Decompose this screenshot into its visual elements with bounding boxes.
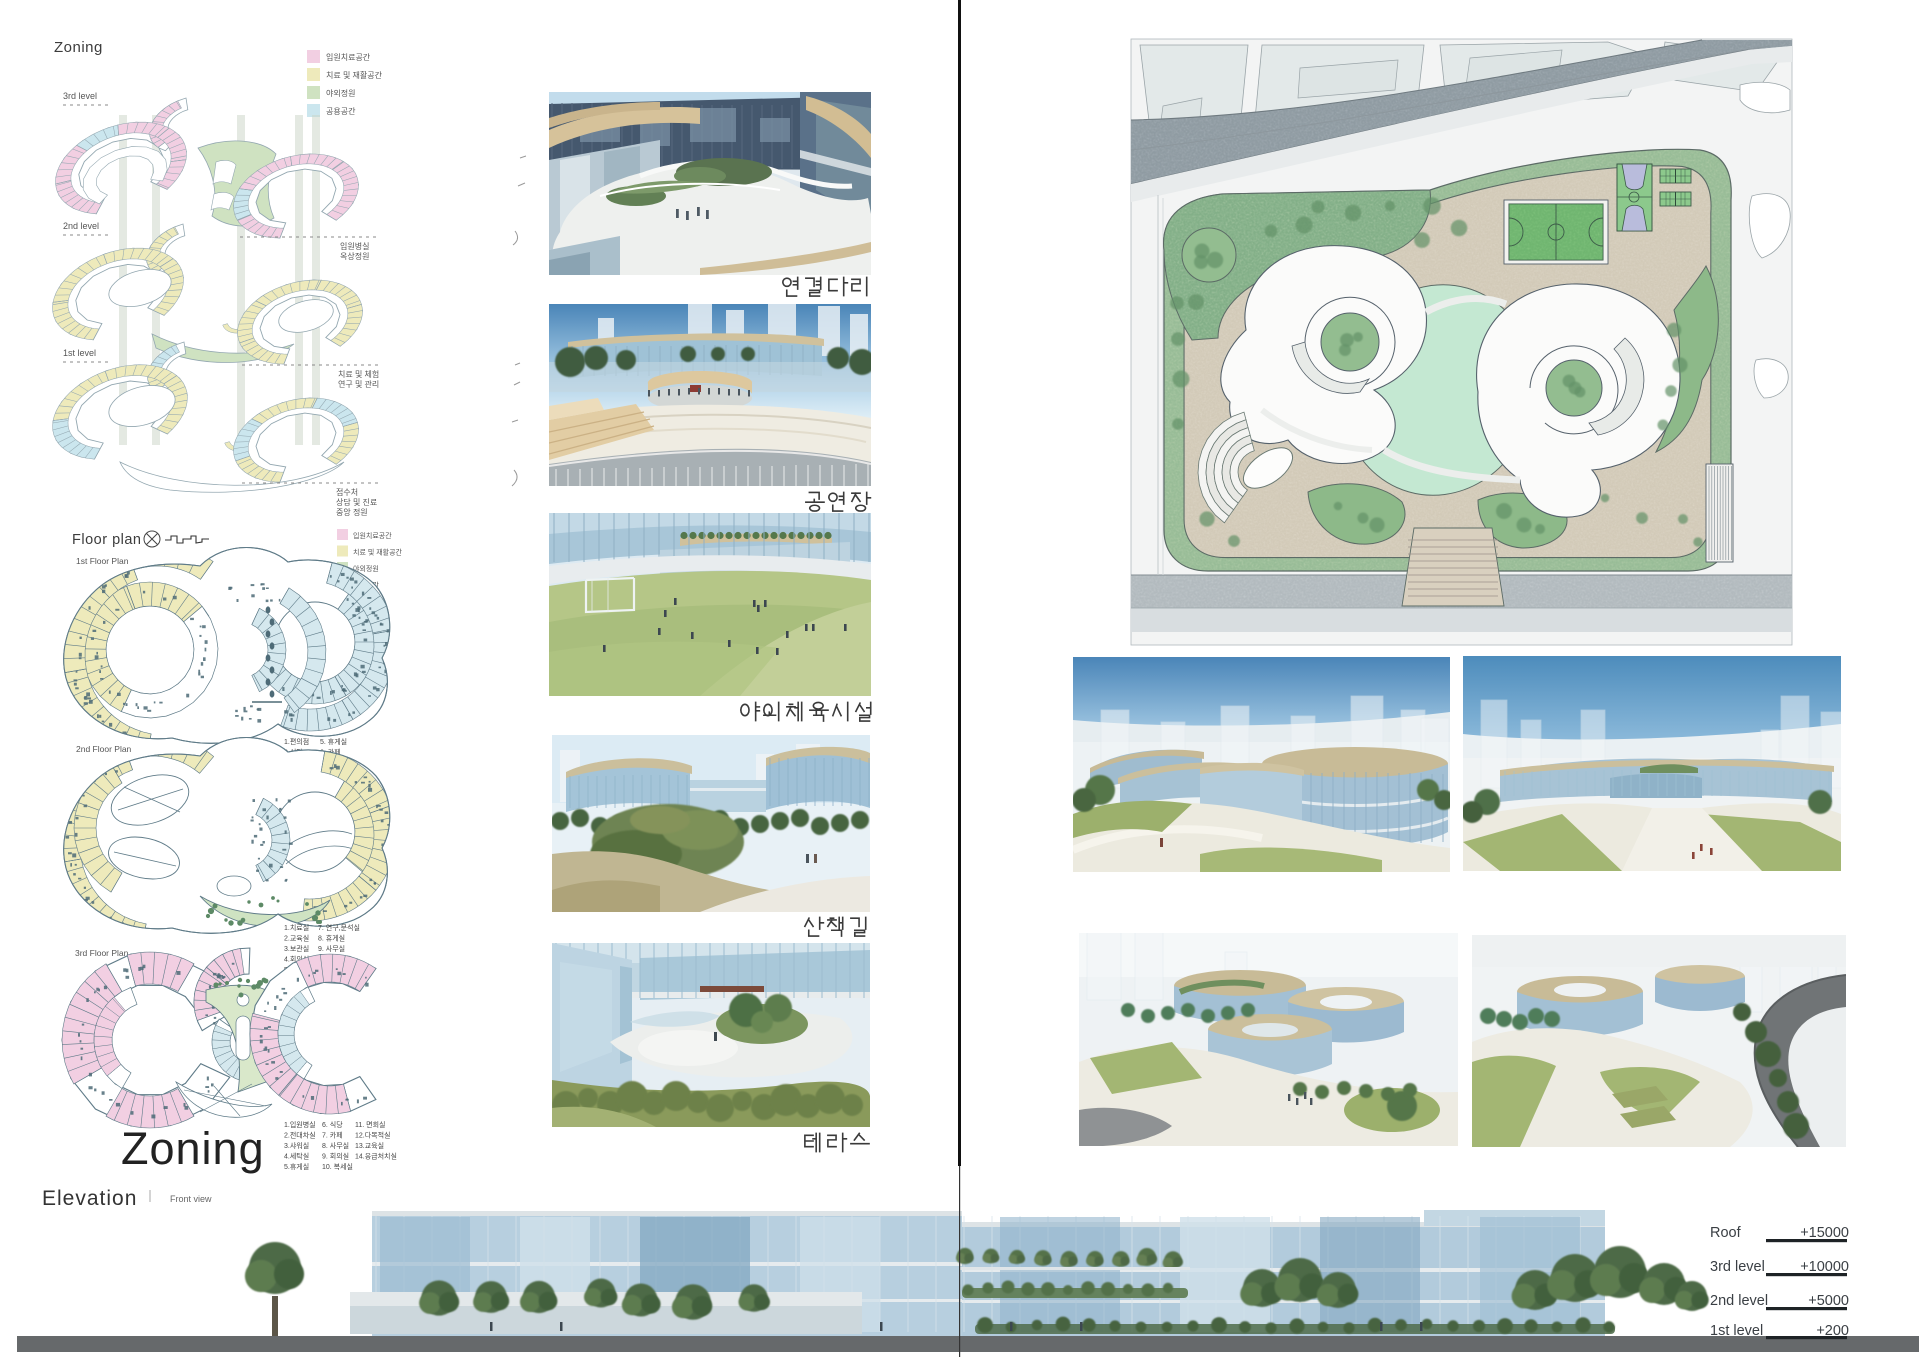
svg-text:4.세탁실: 4.세탁실: [284, 1152, 309, 1161]
svg-text:중앙 정원: 중앙 정원: [336, 507, 368, 517]
svg-text:12.다목적실: 12.다목적실: [355, 1131, 391, 1140]
svg-text:3.샤워실: 3.샤워실: [284, 1141, 309, 1150]
svg-text:2nd Floor Plan: 2nd Floor Plan: [76, 744, 132, 754]
svg-text:입원치료공간: 입원치료공간: [326, 52, 371, 62]
svg-text:1st Floor Plan: 1st Floor Plan: [76, 556, 129, 566]
svg-text:1.입원병실: 1.입원병실: [284, 1120, 316, 1129]
svg-text:Roof: Roof: [1710, 1225, 1742, 1241]
svg-text:13.교육실: 13.교육실: [355, 1141, 384, 1150]
svg-text:+5000: +5000: [1808, 1293, 1849, 1309]
svg-text:5. 휴게실: 5. 휴게실: [320, 737, 347, 746]
svg-text:7. 카페: 7. 카페: [322, 1131, 343, 1140]
svg-text:Floor plan: Floor plan: [72, 532, 141, 548]
svg-text:공용공간: 공용공간: [326, 106, 356, 116]
svg-text:3rd level: 3rd level: [63, 91, 97, 101]
svg-text:야외정원: 야외정원: [326, 88, 355, 98]
svg-text:2.전대차실: 2.전대차실: [284, 1131, 316, 1140]
svg-text:접수처: 접수처: [336, 487, 358, 497]
svg-text:10. 복세실: 10. 복세실: [322, 1162, 353, 1171]
svg-text:14.응급처치실: 14.응급처치실: [355, 1152, 397, 1161]
svg-text:Zoning: Zoning: [54, 39, 103, 56]
svg-text:Elevation: Elevation: [42, 1187, 137, 1210]
svg-text:3rd level: 3rd level: [1710, 1259, 1765, 1275]
svg-text:1st level: 1st level: [63, 348, 96, 358]
svg-text:치료 및 재활공간: 치료 및 재활공간: [353, 548, 403, 557]
svg-text:9. 회의실: 9. 회의실: [322, 1152, 349, 1161]
svg-text:3rd Floor Plan: 3rd Floor Plan: [75, 948, 129, 958]
svg-text:입원병실: 입원병실: [340, 241, 369, 251]
svg-text:Zoning: Zoning: [121, 1123, 265, 1174]
svg-text:Front view: Front view: [170, 1194, 212, 1204]
svg-text:치료 및 체험: 치료 및 체험: [338, 369, 379, 379]
svg-text:입원치료공간: 입원치료공간: [353, 531, 392, 540]
svg-text:상담 및 진료: 상담 및 진료: [336, 497, 377, 507]
svg-text:5.휴게실: 5.휴게실: [284, 1162, 309, 1171]
svg-text:8. 휴게실: 8. 휴게실: [318, 934, 345, 943]
svg-text:치료 및 재활공간: 치료 및 재활공간: [326, 70, 383, 80]
svg-text:11. 면회실: 11. 면회실: [355, 1120, 385, 1129]
svg-text:8. 사무실: 8. 사무실: [322, 1141, 349, 1150]
svg-text:연구 및 관리: 연구 및 관리: [338, 379, 379, 389]
svg-text:1.치료실: 1.치료실: [284, 923, 309, 932]
svg-text:2nd level: 2nd level: [63, 221, 99, 231]
svg-text:옥상정원: 옥상정원: [340, 251, 369, 261]
svg-text:7. 연구,문석실: 7. 연구,문석실: [318, 923, 360, 932]
svg-text:1st level: 1st level: [1710, 1323, 1763, 1339]
svg-text:9. 사무실: 9. 사무실: [318, 944, 345, 953]
svg-text:+10000: +10000: [1800, 1259, 1849, 1275]
svg-text:6. 식당: 6. 식당: [322, 1120, 343, 1129]
svg-text:2nd level: 2nd level: [1710, 1293, 1768, 1309]
svg-text:+15000: +15000: [1800, 1225, 1849, 1241]
svg-text:3.보관실: 3.보관실: [284, 944, 309, 953]
svg-text:2.교육실: 2.교육실: [284, 934, 309, 943]
svg-text:1.편의점: 1.편의점: [284, 737, 309, 746]
